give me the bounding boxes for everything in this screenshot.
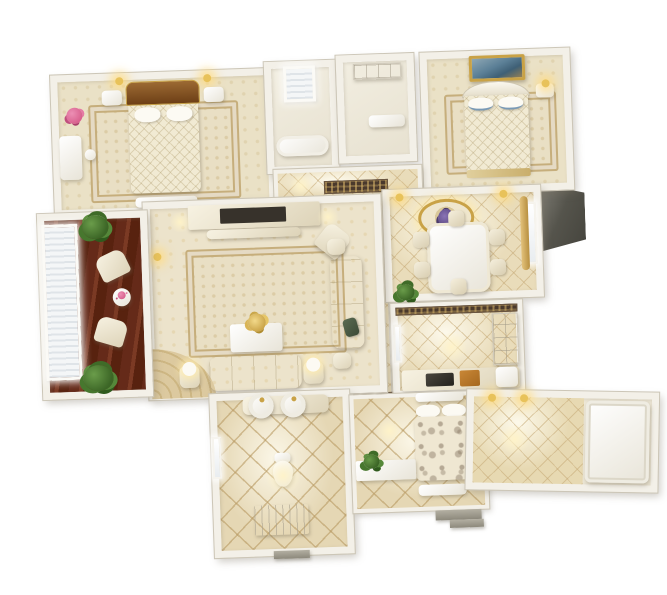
toilet-bowl: [273, 460, 294, 487]
wall-shelf: [415, 391, 463, 402]
light-glow: [288, 174, 315, 197]
cutting-board: [460, 370, 481, 387]
bedroom2-bed: [461, 80, 532, 182]
closet-dresser: [369, 114, 405, 127]
side-table: [333, 352, 352, 369]
room-window-lounge: [37, 210, 153, 400]
room-master-bedroom: [50, 68, 277, 218]
room-kitchen: [390, 299, 525, 398]
bed-gold-throw: [467, 168, 531, 178]
light-glow: [374, 417, 405, 444]
dining-chair: [490, 259, 507, 276]
sconce-icon: [520, 394, 528, 402]
balcony-tile-floor: [473, 396, 584, 484]
potted-plant-icon: [82, 215, 109, 240]
sconce-icon: [499, 190, 507, 198]
bed-foot-bench: [419, 483, 467, 496]
dining-chair: [414, 261, 431, 278]
sconce-icon: [153, 253, 161, 261]
potted-plant-icon: [83, 365, 114, 392]
entry-step: [274, 550, 310, 559]
armchair: [93, 315, 129, 348]
loveseat: [209, 354, 302, 391]
master-vanity-table: [59, 136, 83, 181]
tv-screen: [220, 206, 286, 223]
entry-step: [450, 519, 484, 528]
dining-chair: [413, 232, 430, 249]
sconce-icon: [395, 193, 403, 201]
wardrobe-unit: [353, 62, 402, 80]
window-icon: [393, 325, 402, 363]
toilet: [272, 452, 293, 487]
nightstand: [102, 90, 123, 106]
armchair: [93, 247, 131, 284]
bedroom3-bed: [414, 403, 471, 481]
ornate-duvet: [414, 415, 470, 481]
floorplan-render: [0, 0, 667, 595]
side-table: [327, 238, 346, 255]
light-glow: [434, 332, 469, 361]
dining-chair: [489, 229, 506, 246]
upper-cabinets: [492, 312, 520, 365]
sconce-icon: [115, 77, 123, 85]
master-bed: [125, 79, 203, 200]
window-blinds: [41, 224, 82, 381]
dining-chair: [448, 210, 465, 227]
landscape-painting: [469, 54, 526, 82]
fridge: [495, 366, 518, 387]
sconce-icon: [488, 394, 496, 402]
apartment-plan: [0, 0, 667, 595]
nightstand: [203, 87, 224, 103]
tv-console: [206, 227, 300, 239]
bathtub: [276, 135, 329, 157]
room-dining: [382, 185, 544, 302]
shower-tray: [254, 504, 309, 536]
window-icon: [212, 437, 222, 479]
mosaic-runner: [324, 179, 388, 194]
room-ensuite-bathroom: [264, 60, 340, 174]
room-balcony: [465, 389, 659, 492]
sconce-icon: [203, 74, 211, 82]
window-icon: [283, 65, 316, 102]
potted-plant-icon: [397, 284, 416, 301]
pink-flowers-icon: [66, 108, 83, 125]
room-main-bathroom: [209, 389, 355, 558]
daybed-panel: [585, 400, 650, 483]
dining-chair: [450, 278, 467, 295]
bed-headboard: [125, 79, 200, 106]
room-bedroom-2: [419, 47, 574, 194]
cooktop: [426, 373, 454, 387]
room-living: [142, 194, 387, 400]
room-walk-in-closet: [335, 53, 417, 164]
